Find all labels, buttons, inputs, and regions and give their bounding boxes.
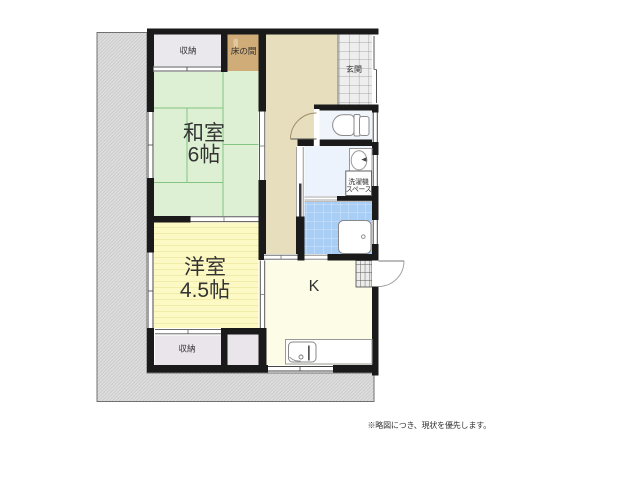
svg-text:収納: 収納 (179, 46, 196, 56)
svg-text:6帖: 6帖 (188, 144, 221, 167)
svg-text:収納: 収納 (178, 344, 195, 354)
svg-text:和室: 和室 (183, 122, 225, 145)
svg-text:床の間: 床の間 (231, 45, 257, 56)
svg-text:洋室: 洋室 (184, 256, 226, 279)
svg-text:※略図につき、現状を優先します。: ※略図につき、現状を優先します。 (368, 420, 491, 430)
svg-text:K: K (309, 278, 320, 295)
svg-text:玄関: 玄関 (346, 64, 362, 74)
svg-text:洗濯機: 洗濯機 (348, 177, 369, 186)
svg-text:スペース: スペース (346, 186, 372, 194)
svg-text:4.5帖: 4.5帖 (180, 279, 230, 302)
